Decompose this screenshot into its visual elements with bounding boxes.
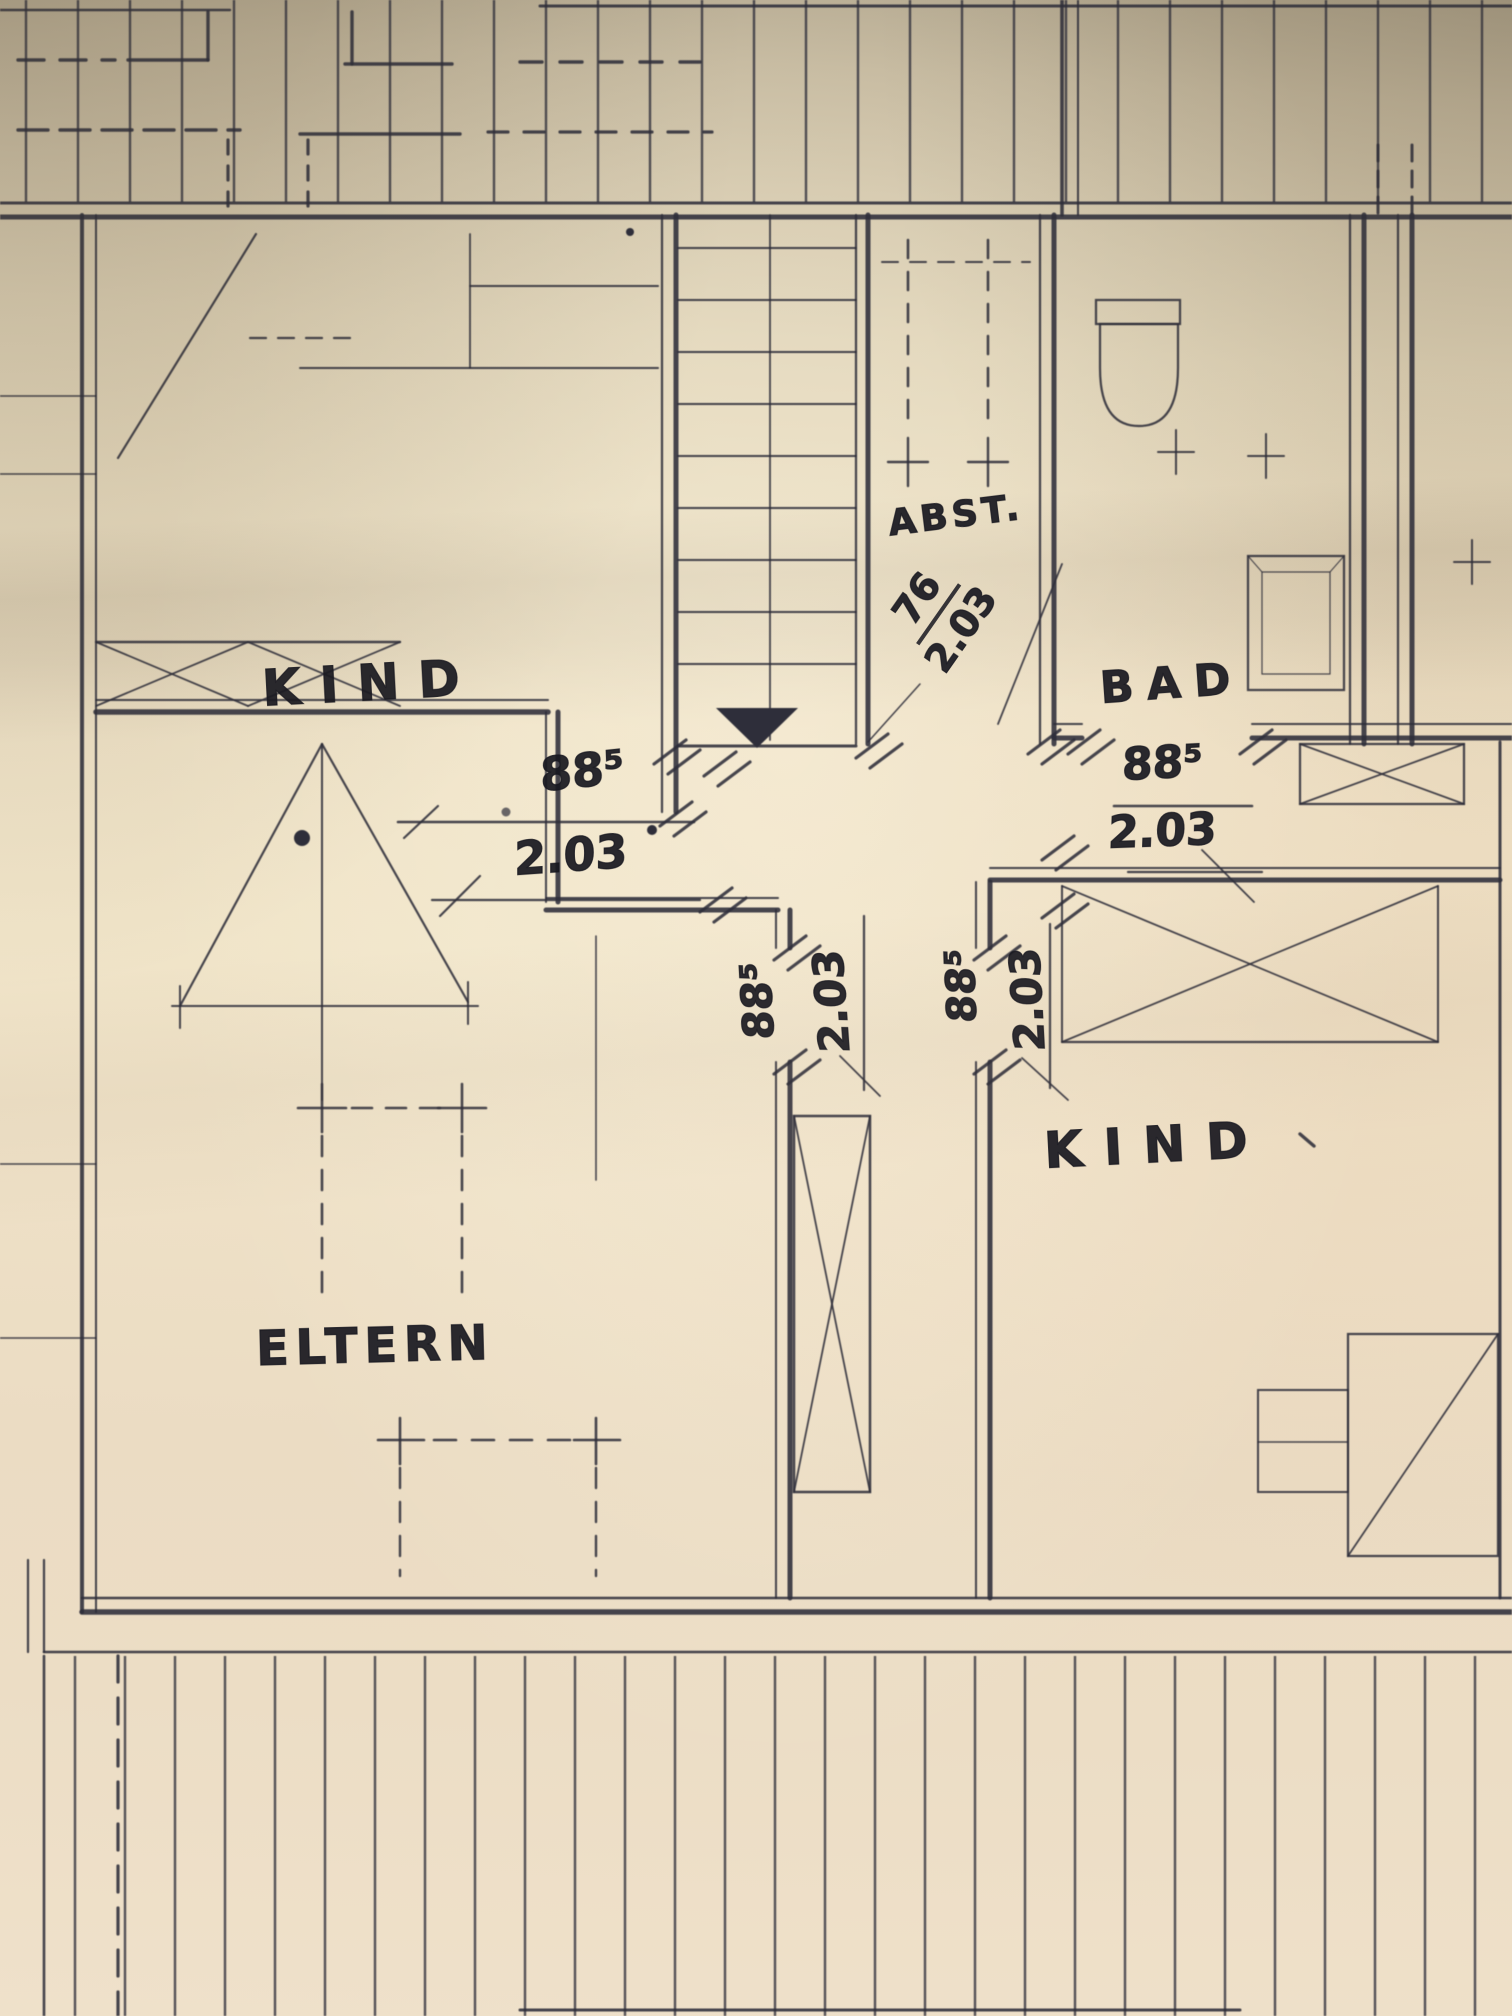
exterior-walls bbox=[0, 215, 1512, 1612]
stair-down-arrow-icon bbox=[716, 708, 798, 748]
room-label-kind-bottom: KIND bbox=[1043, 1114, 1270, 1176]
roof-hatch-band-top bbox=[0, 0, 1512, 236]
dim-kind-bottom-door-height: 2.03 bbox=[1004, 950, 1051, 1051]
kind-bottom-furniture bbox=[1062, 886, 1498, 1556]
sink-icon bbox=[1248, 556, 1344, 690]
tile-cross-marks bbox=[1158, 430, 1490, 584]
chimney-block bbox=[794, 1116, 870, 1492]
staircase bbox=[678, 215, 856, 748]
floorplan-photo: KIND ABST. BAD ELTERN KIND 88⁵ 2.03 76 2… bbox=[0, 0, 1512, 2016]
kind-top-furniture bbox=[96, 234, 658, 706]
room-label-kind-top: KIND bbox=[261, 652, 480, 713]
dim-eltern-door-height: 2.03 bbox=[807, 953, 856, 1053]
dim-bad-door-width: 88⁵ bbox=[1122, 740, 1203, 788]
knee-wall-bad bbox=[1300, 744, 1464, 804]
dim-eltern-door-width: 88⁵ bbox=[734, 950, 781, 1051]
dim-kind-bottom-door-width: 88⁵ bbox=[940, 935, 984, 1037]
roof-hatch-band-bottom bbox=[28, 1560, 1512, 2016]
dim-kind-top-door-height: 2.03 bbox=[514, 828, 627, 882]
dim-kind-top-door-width: 88⁵ bbox=[539, 744, 624, 799]
abst-shelving bbox=[882, 240, 1030, 486]
dim-bad-door-height: 2.03 bbox=[1107, 808, 1217, 856]
room-label-eltern: ELTERN bbox=[255, 1319, 495, 1373]
room-label-bad: BAD bbox=[1099, 657, 1245, 711]
toilet-icon bbox=[1096, 300, 1180, 426]
